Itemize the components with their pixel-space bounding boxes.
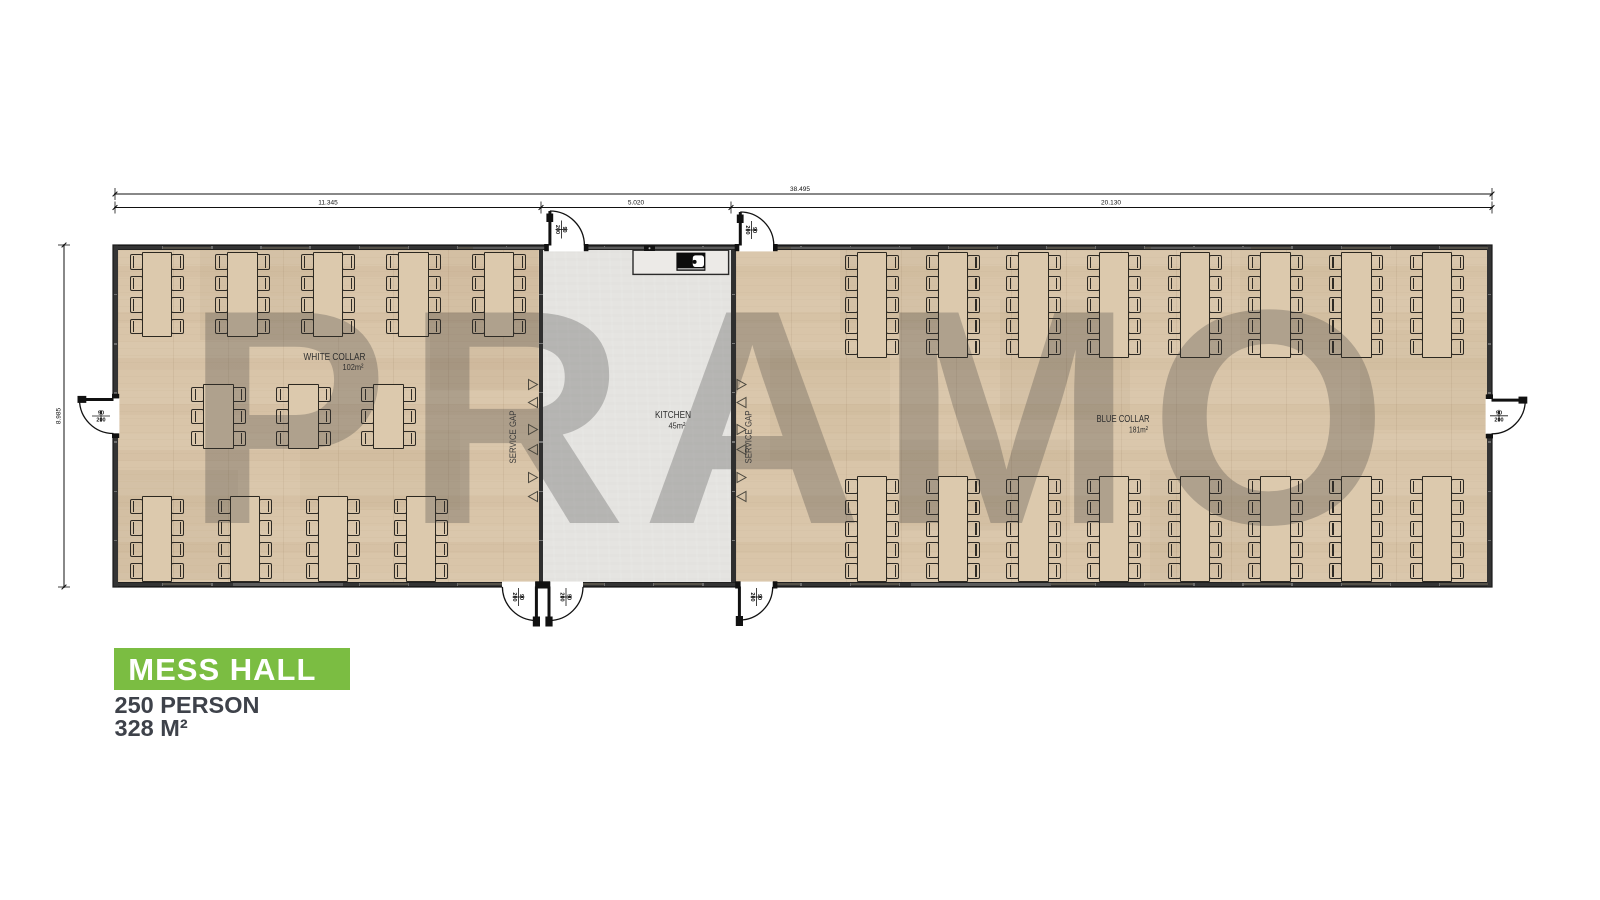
svg-text:200: 200 — [1494, 417, 1503, 423]
svg-text:90: 90 — [751, 227, 757, 233]
svg-text:200: 200 — [96, 418, 105, 424]
svg-text:181m²: 181m² — [1129, 425, 1148, 435]
svg-text:SERVICE GAP: SERVICE GAP — [744, 411, 754, 464]
svg-text:KITCHEN: KITCHEN — [655, 410, 691, 421]
svg-text:200: 200 — [744, 225, 750, 234]
svg-text:90: 90 — [561, 226, 567, 232]
svg-text:5.020: 5.020 — [628, 200, 645, 207]
svg-text:11.345: 11.345 — [318, 200, 338, 207]
svg-text:90: 90 — [518, 594, 524, 600]
svg-text:38.495: 38.495 — [790, 186, 810, 193]
svg-text:200: 200 — [511, 592, 517, 601]
svg-text:SERVICE GAP: SERVICE GAP — [508, 411, 518, 464]
svg-text:8.985: 8.985 — [56, 407, 63, 424]
svg-text:20.130: 20.130 — [1101, 200, 1121, 207]
svg-text:200: 200 — [554, 225, 560, 234]
svg-text:90: 90 — [566, 594, 572, 600]
svg-text:90: 90 — [1496, 410, 1502, 416]
svg-text:102m²: 102m² — [343, 362, 364, 372]
svg-text:BLUE COLLAR: BLUE COLLAR — [1097, 414, 1150, 425]
svg-text:90: 90 — [756, 594, 762, 600]
svg-text:90: 90 — [98, 411, 104, 417]
svg-text:200: 200 — [749, 592, 755, 601]
svg-text:200: 200 — [559, 592, 565, 601]
svg-text:45m²: 45m² — [669, 421, 686, 431]
